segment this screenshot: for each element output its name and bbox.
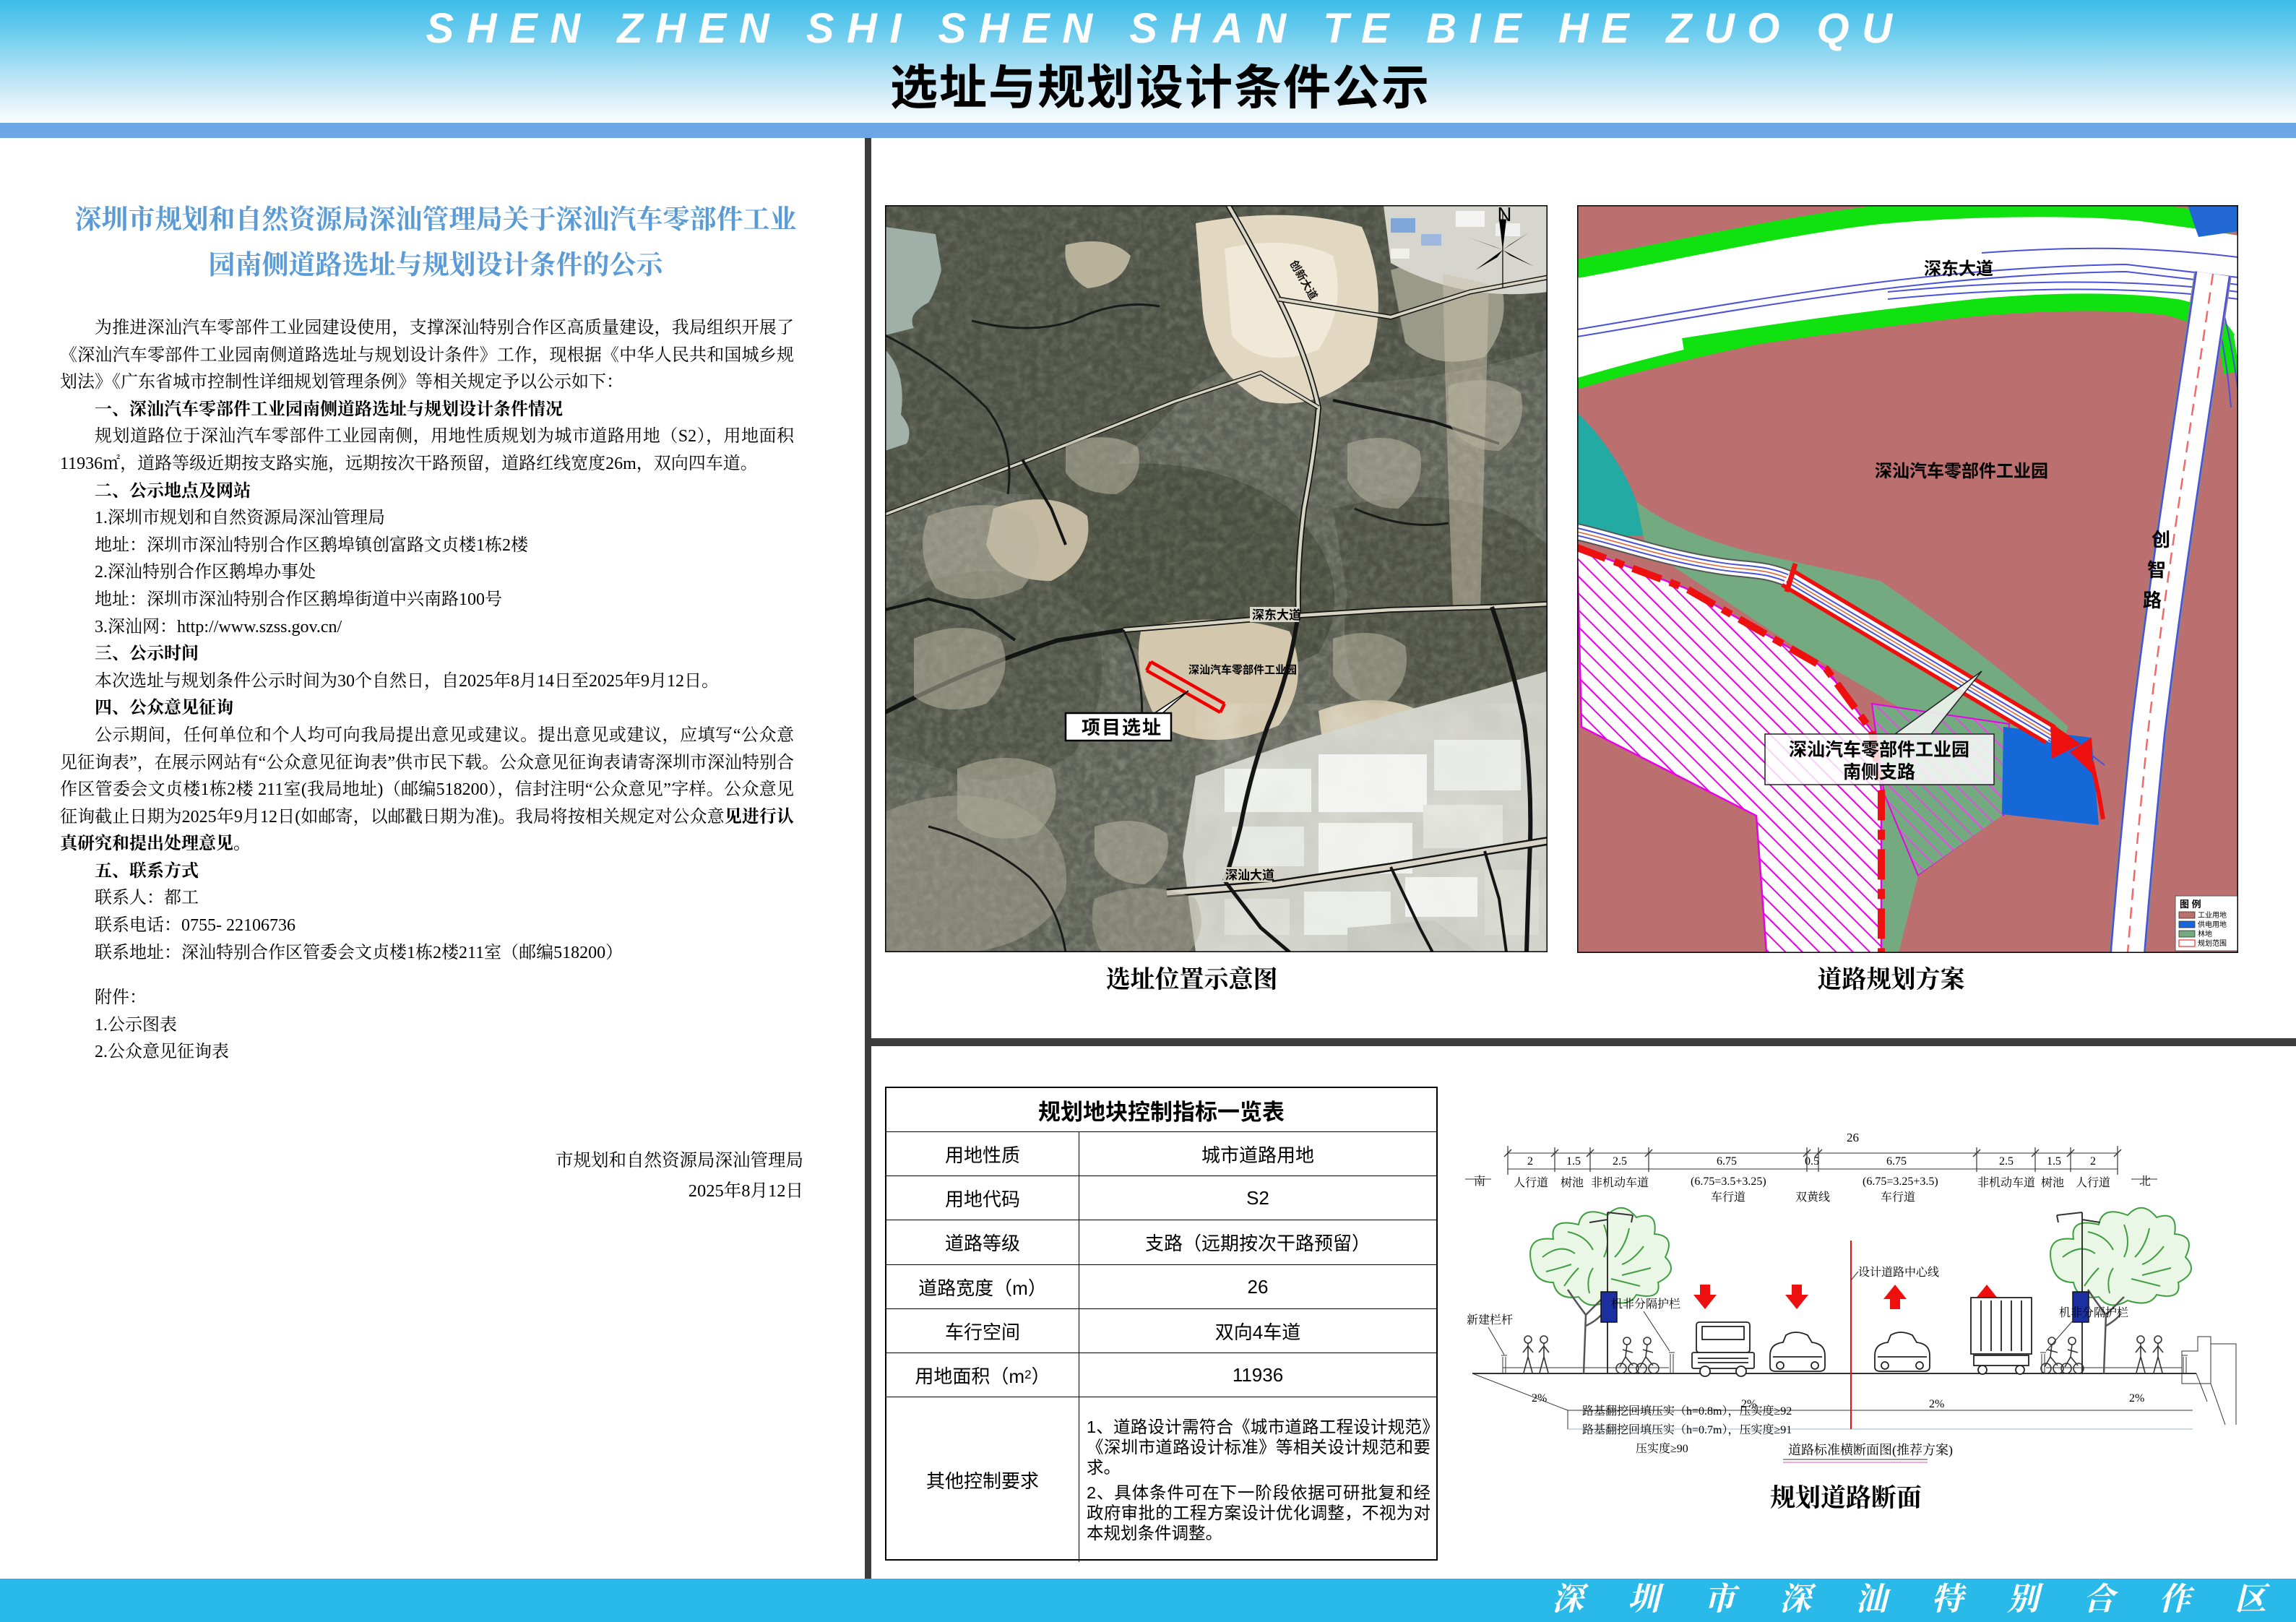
svg-text:深汕汽车零部件工业园: 深汕汽车零部件工业园 (1875, 462, 2048, 481)
svg-text:深汕汽车零部件工业园: 深汕汽车零部件工业园 (1789, 740, 1969, 760)
svg-text:深汕汽车零部件工业园: 深汕汽车零部件工业园 (1188, 663, 1297, 676)
svg-text:图 例: 图 例 (2180, 899, 2201, 910)
svg-text:供电用地: 供电用地 (2198, 920, 2227, 929)
svg-text:非机动车道: 非机动车道 (1977, 1176, 2035, 1189)
svg-text:2: 2 (2090, 1155, 2096, 1168)
svg-text:2.5: 2.5 (1999, 1155, 2014, 1168)
svg-text:车行道: 车行道 (1711, 1191, 1745, 1204)
svg-text:深东大道: 深东大道 (1924, 259, 1993, 279)
svg-text:车行道: 车行道 (1881, 1191, 1915, 1204)
svg-text:(6.75=3.5+3.25): (6.75=3.5+3.25) (1691, 1175, 1766, 1188)
svg-text:北: 北 (2139, 1175, 2151, 1188)
svg-text:机非分隔护栏: 机非分隔护栏 (2059, 1306, 2128, 1319)
svg-text:规划范围: 规划范围 (2198, 939, 2227, 948)
svg-text:(6.75=3.25+3.5): (6.75=3.25+3.5) (1863, 1175, 1938, 1188)
svg-text:机非分隔护栏: 机非分隔护栏 (1611, 1298, 1680, 1311)
svg-text:路基翻挖回填压实（h=0.8m），压实度≥92: 路基翻挖回填压实（h=0.8m），压实度≥92 (1582, 1404, 1792, 1418)
svg-text:南: 南 (1474, 1175, 1485, 1188)
svg-text:工业用地: 工业用地 (2198, 910, 2227, 920)
svg-text:树池: 树池 (2041, 1176, 2064, 1189)
svg-text:林地: 林地 (2198, 929, 2212, 939)
svg-text:6.75: 6.75 (1886, 1155, 1907, 1168)
svg-text:设计道路中心线: 设计道路中心线 (1858, 1266, 1939, 1279)
svg-text:路基翻挖回填压实（h=0.7m），压实度≥91: 路基翻挖回填压实（h=0.7m），压实度≥91 (1582, 1423, 1792, 1436)
svg-text:智: 智 (2147, 559, 2166, 581)
svg-text:创: 创 (2152, 529, 2170, 551)
svg-text:树池: 树池 (1561, 1176, 1584, 1189)
svg-text:2%: 2% (1532, 1392, 1547, 1405)
svg-text:压实度≥90: 压实度≥90 (1636, 1442, 1688, 1455)
svg-text:路: 路 (2143, 590, 2162, 611)
svg-text:人行道: 人行道 (2076, 1176, 2110, 1189)
svg-text:深东大道: 深东大道 (1252, 608, 1301, 622)
svg-text:非机动车道: 非机动车道 (1591, 1176, 1649, 1189)
svg-text:2%: 2% (2129, 1392, 2144, 1405)
svg-text:26: 26 (1847, 1131, 1859, 1144)
svg-text:2: 2 (1527, 1155, 1533, 1168)
svg-text:深汕大道: 深汕大道 (1225, 868, 1274, 882)
svg-text:2.5: 2.5 (1613, 1155, 1627, 1168)
svg-text:项目选址: 项目选址 (1082, 717, 1162, 738)
svg-text:新建栏杆: 新建栏杆 (1467, 1313, 1513, 1326)
svg-text:1.5: 1.5 (2047, 1155, 2061, 1168)
svg-text:1.5: 1.5 (1566, 1155, 1581, 1168)
svg-text:2%: 2% (1929, 1398, 1944, 1410)
svg-text:南侧支路: 南侧支路 (1843, 762, 1915, 782)
svg-text:0.5: 0.5 (1805, 1155, 1819, 1168)
svg-text:6.75: 6.75 (1717, 1155, 1737, 1168)
svg-text:人行道: 人行道 (1514, 1176, 1548, 1189)
svg-text:道路标准横断面图(推荐方案): 道路标准横断面图(推荐方案) (1788, 1443, 1953, 1458)
svg-text:双黄线: 双黄线 (1795, 1190, 1830, 1204)
